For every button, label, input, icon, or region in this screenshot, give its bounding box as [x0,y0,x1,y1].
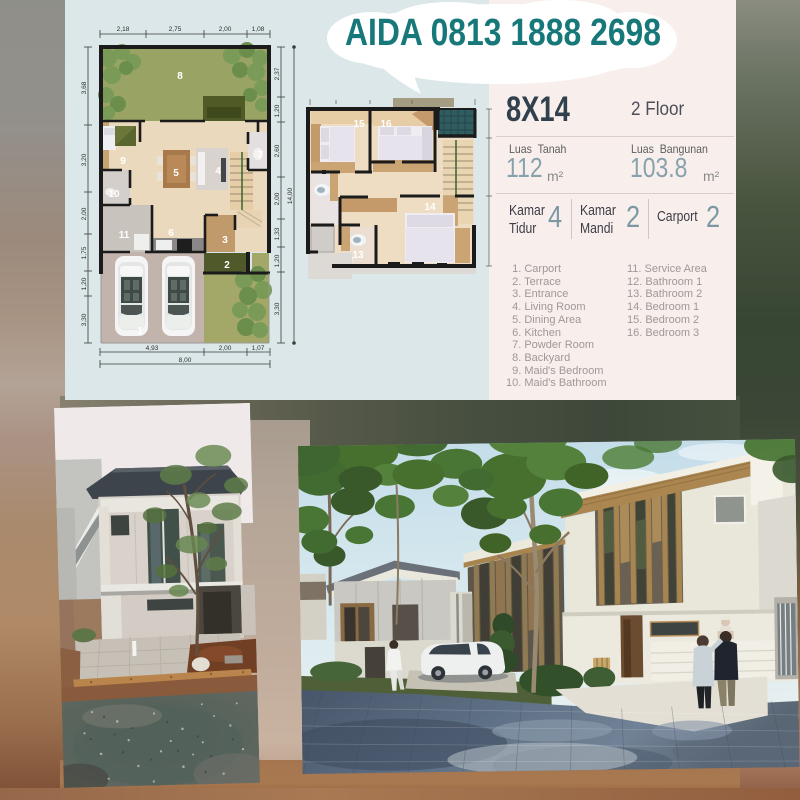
svg-text:1,07: 1,07 [252,345,265,352]
svg-text:2,60: 2,60 [274,144,281,157]
svg-text:AIDA 0813 1888 2698: AIDA 0813 1888 2698 [345,12,661,54]
svg-text:3,20: 3,20 [81,153,88,166]
svg-text:1,20: 1,20 [81,277,88,290]
svg-text:14: 14 [424,202,436,213]
svg-text:8,00: 8,00 [179,357,192,364]
svg-text:3,30: 3,30 [274,302,281,315]
svg-text:5: 5 [173,168,179,179]
svg-text:8: 8 [177,71,183,82]
svg-text:10: 10 [108,189,120,200]
svg-text:2,00: 2,00 [81,207,88,220]
svg-text:1,33: 1,33 [274,227,281,240]
svg-text:11: 11 [119,230,130,241]
svg-text:2,00: 2,00 [274,192,281,205]
svg-text:6: 6 [168,228,174,239]
svg-text:4: 4 [215,166,221,177]
svg-text:16: 16 [380,119,392,130]
svg-text:3,68: 3,68 [81,81,88,94]
svg-text:3: 3 [222,235,228,246]
svg-text:2,00: 2,00 [219,26,232,33]
svg-text:7: 7 [257,150,263,161]
svg-text:1: 1 [137,326,143,337]
svg-text:15: 15 [353,119,365,130]
svg-text:2,37: 2,37 [274,67,281,80]
svg-text:1,20: 1,20 [274,104,281,117]
svg-text:2,00: 2,00 [219,345,232,352]
svg-text:2,18: 2,18 [117,26,130,33]
svg-text:1,08: 1,08 [252,26,265,33]
svg-text:2: 2 [224,260,230,271]
svg-text:1,75: 1,75 [81,246,88,259]
svg-text:4,93: 4,93 [146,345,159,352]
svg-text:2,75: 2,75 [169,26,182,33]
svg-text:13: 13 [352,250,364,261]
svg-text:1,20: 1,20 [274,254,281,267]
svg-text:9: 9 [120,156,126,167]
svg-text:3,30: 3,30 [81,313,88,326]
svg-text:14,00: 14,00 [287,187,294,204]
